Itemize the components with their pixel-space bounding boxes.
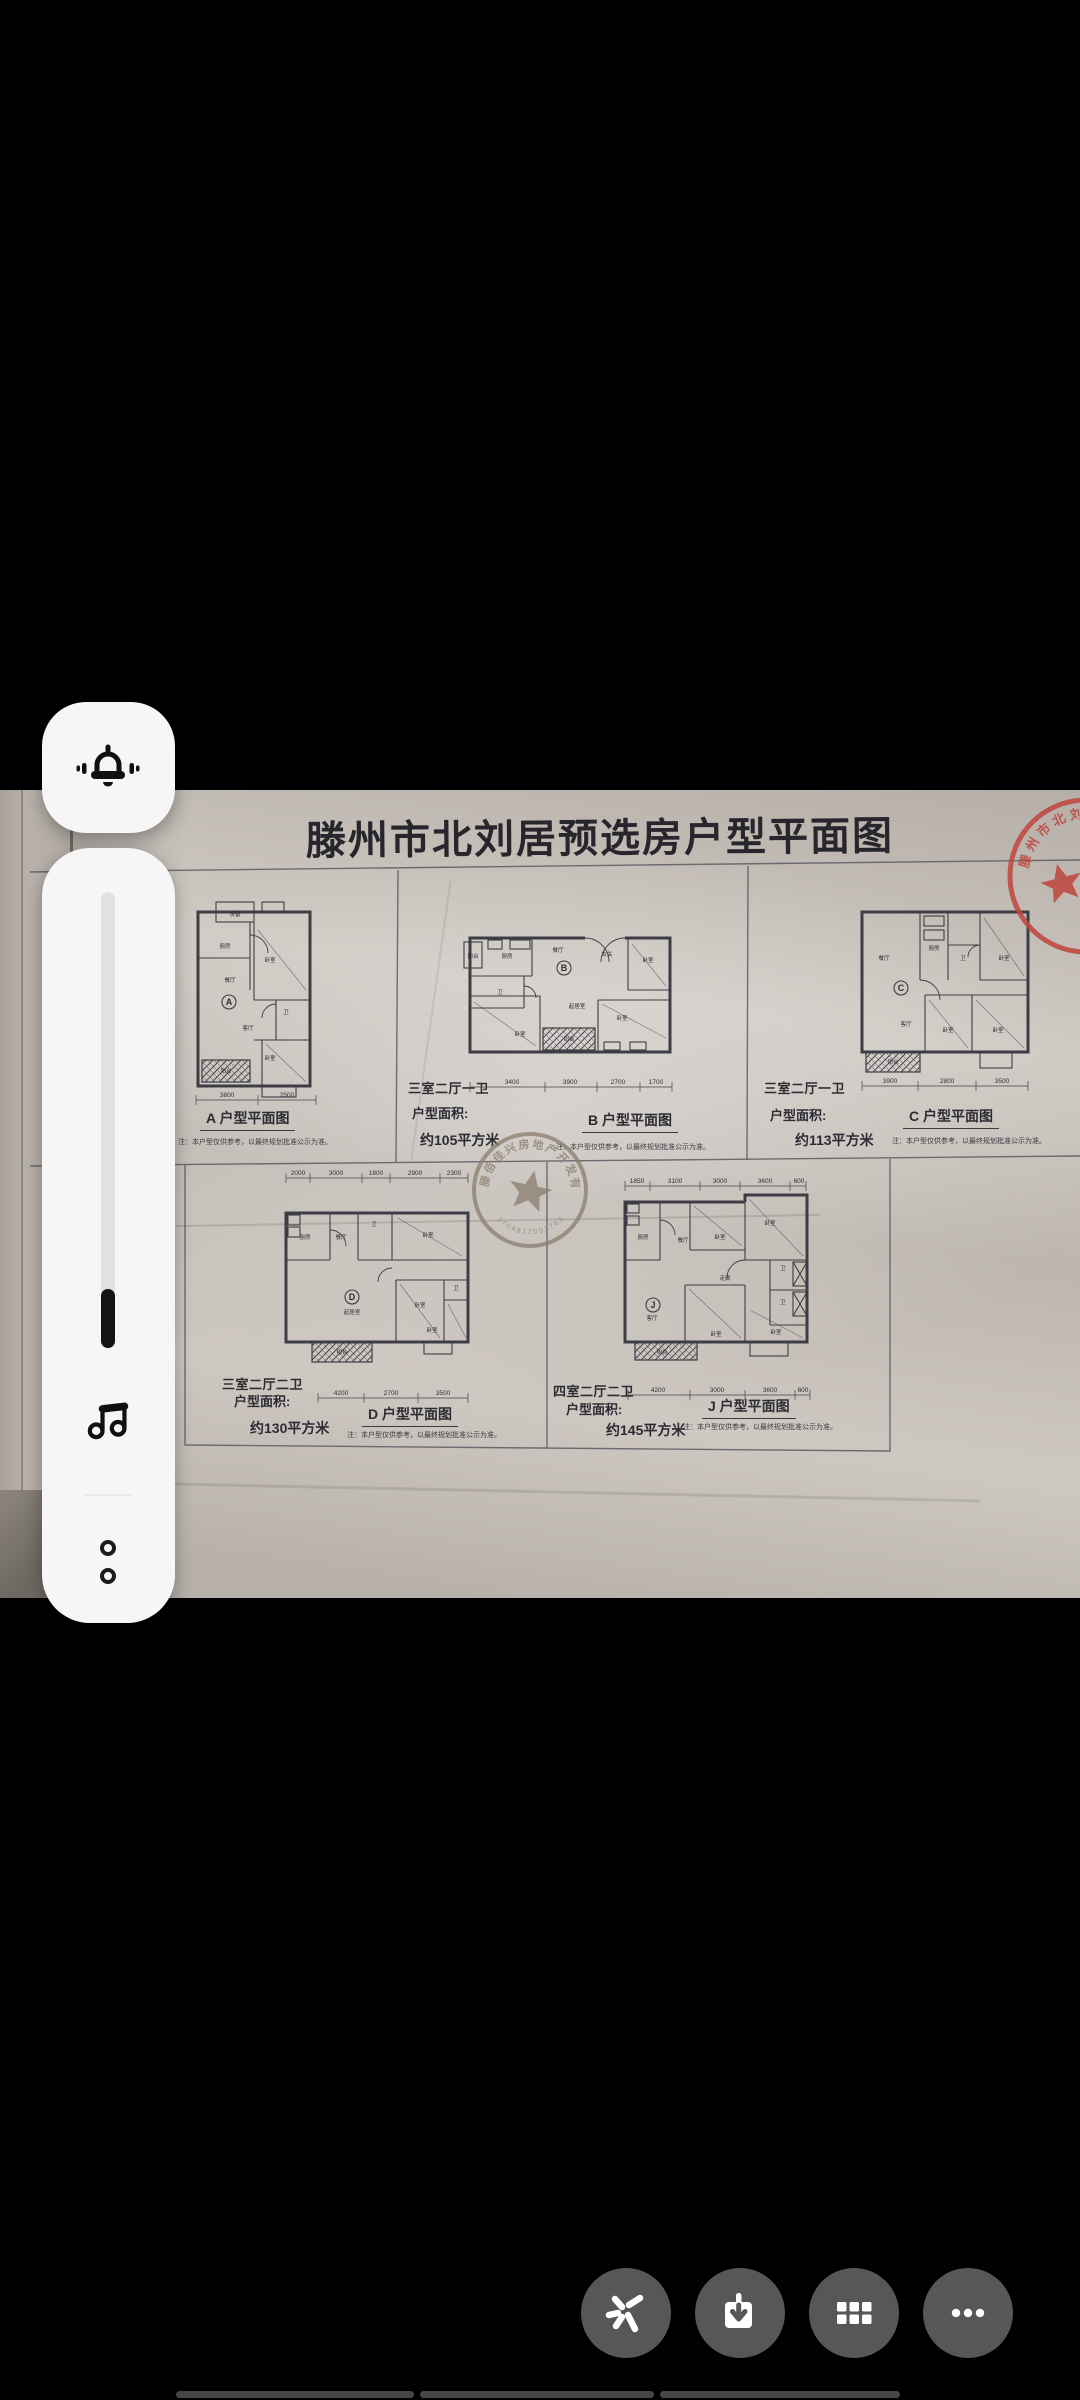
room-label: 厨房 [928,944,940,952]
ai-edit-button[interactable] [581,2268,671,2358]
more-options-button[interactable] [923,2268,1013,2358]
volume-slider-fill[interactable] [101,1289,115,1348]
download-icon [716,2289,764,2337]
svg-text:D: D [349,1292,356,1302]
dim-label: 600 [798,1387,809,1394]
room-label: 卫 [780,1299,786,1306]
room-label: 卫 [371,1221,377,1228]
dim-label: 2500 [280,1092,295,1099]
volume-slider-panel [42,848,175,1623]
music-note-icon [81,1392,135,1446]
svg-text:3704812003763: 3704812003763 [495,1215,566,1236]
room-label: 玄关 [601,950,613,958]
room-label: 客厅 [242,1024,254,1032]
room-label: 餐厅 [335,1233,347,1241]
room-label: 卧室 [422,1231,434,1239]
dot-icon [100,1568,116,1584]
dot-icon [100,1540,116,1556]
dim-label: 3000 [713,1178,728,1185]
dim-label: 4200 [334,1390,349,1397]
plan-c-drawing: C 餐厅 厨房 卫 卧室 客厅 卧室 卧室 阳台 3900 2800 3500 [862,912,1028,1091]
room-label: 卧室 [616,1014,628,1022]
room-label: 餐厅 [552,946,564,954]
ellipsis-icon [944,2289,992,2337]
ring-mode-button[interactable] [42,702,175,833]
dim-label: 3900 [883,1078,898,1085]
room-label: 阳台 [220,1067,232,1075]
room-label: 卧室 [426,1326,438,1334]
svg-text:B: B [561,963,568,973]
dim-label: 3000 [329,1170,344,1177]
room-label: 阳台 [656,1348,668,1356]
dim-label: 2800 [940,1078,955,1085]
room-label: 卧室 [992,1026,1004,1034]
svg-text:A: A [226,997,233,1007]
grid-view-button[interactable] [809,2268,899,2358]
dim-label: 3800 [220,1092,235,1099]
room-label: 卧室 [264,1054,276,1062]
room-label: 厨房 [299,1233,311,1241]
room-label: 厨房 [219,942,231,950]
room-label: 厨房 [501,952,513,960]
room-label: 卧室 [942,1026,954,1034]
progress-segment[interactable] [660,2391,900,2398]
dim-label: 2700 [384,1390,399,1397]
room-label: 卧室 [414,1301,426,1309]
stamp-arc-text: 滕州市北刘居区城改造 [1016,805,1080,872]
room-label: 卫 [960,955,966,962]
bell-ring-icon [76,735,140,799]
room-label: 阳台 [467,952,479,960]
room-label: 卫 [283,1009,289,1016]
dim-label: 2300 [447,1170,462,1177]
dim-label: 3600 [758,1178,773,1185]
svg-text:滕州市北刘居区城改造: 滕州市北刘居区城改造 [1016,805,1080,872]
room-label: 餐厅 [224,976,236,984]
room-label: 客厅 [900,1020,912,1028]
progress-segment[interactable] [420,2391,654,2398]
dim-label: 1700 [649,1079,664,1086]
svg-text:J: J [650,1300,655,1310]
dim-label: 3600 [763,1387,778,1394]
ai-spark-icon [602,2289,650,2337]
download-button[interactable] [695,2268,785,2358]
dim-label: 4200 [651,1387,666,1394]
room-label: 厨房 [637,1233,649,1241]
room-label: 卧室 [264,956,276,964]
phone-screen: 滕州市北刘居预选房户型平面图 A 户型平面图 注：本户型仅供参考，以最终规划批准… [0,0,1080,2400]
room-label: 起居室 [344,1308,361,1316]
room-label: 卧室 [998,954,1010,962]
grid-icon [830,2289,878,2337]
dim-label: 2700 [611,1079,626,1086]
room-label: 卫 [497,989,503,996]
room-label: 起居室 [569,1002,586,1010]
room-label: 阳台 [563,1035,575,1043]
dim-label: 2900 [408,1170,423,1177]
stamp-number: 3704812003763 [495,1215,566,1236]
room-label: 客厅 [646,1314,658,1322]
plan-d-drawing: D 厨房 餐厅 卫 卧室 起居室 卧室 卫 卧室 阳台 2000 3000 18… [286,1170,468,1403]
panel-divider [85,1494,132,1496]
dim-label: 3000 [710,1387,725,1394]
plan-b-drawing: B 阳台 厨房 餐厅 玄关 卧室 卫 起居室 卧室 阳台 卧室 3400 390… [464,938,672,1092]
dim-label: 3900 [563,1079,578,1086]
room-label: 走廊 [719,1274,731,1282]
dim-label: 3500 [436,1390,451,1397]
svg-text:C: C [898,983,905,993]
room-label: 卧室 [714,1233,726,1241]
plan-j-drawing: J 厨房 餐厅 卧室 卧室 走廊 客厅 卫 卫 卧室 卧室 阳台 1850 31… [625,1178,810,1400]
room-label: 卧室 [710,1330,722,1338]
room-label: 卧室 [764,1219,776,1227]
room-label: 阳台 [887,1058,899,1066]
dim-label: 2000 [291,1170,306,1177]
dim-label: 3100 [668,1178,683,1185]
volume-slider-track[interactable] [101,892,115,1348]
plan-a-drawing: A 设备 厨房 餐厅 卧室 卫 客厅 阳台 卧室 3800 2500 [196,902,316,1105]
dim-label: 1800 [369,1170,384,1177]
stamp-top-right: 滕州市北刘居区城改造 [1010,800,1080,952]
dim-label: 600 [794,1178,805,1185]
room-label: 卧室 [642,956,654,964]
room-label: 卫 [780,1265,786,1272]
room-label: 阳台 [336,1348,348,1356]
progress-segment[interactable] [176,2391,414,2398]
room-label: 卧室 [770,1328,782,1336]
room-label: 卫 [453,1285,459,1292]
dim-label: 3500 [995,1078,1010,1085]
room-label: 设备 [229,910,241,918]
room-label: 卧室 [514,1030,526,1038]
room-label: 餐厅 [677,1236,689,1244]
dim-label: 3400 [505,1079,520,1086]
room-label: 餐厅 [878,954,890,962]
expand-volume-button[interactable] [86,1532,131,1596]
dim-label: 1850 [630,1178,645,1185]
